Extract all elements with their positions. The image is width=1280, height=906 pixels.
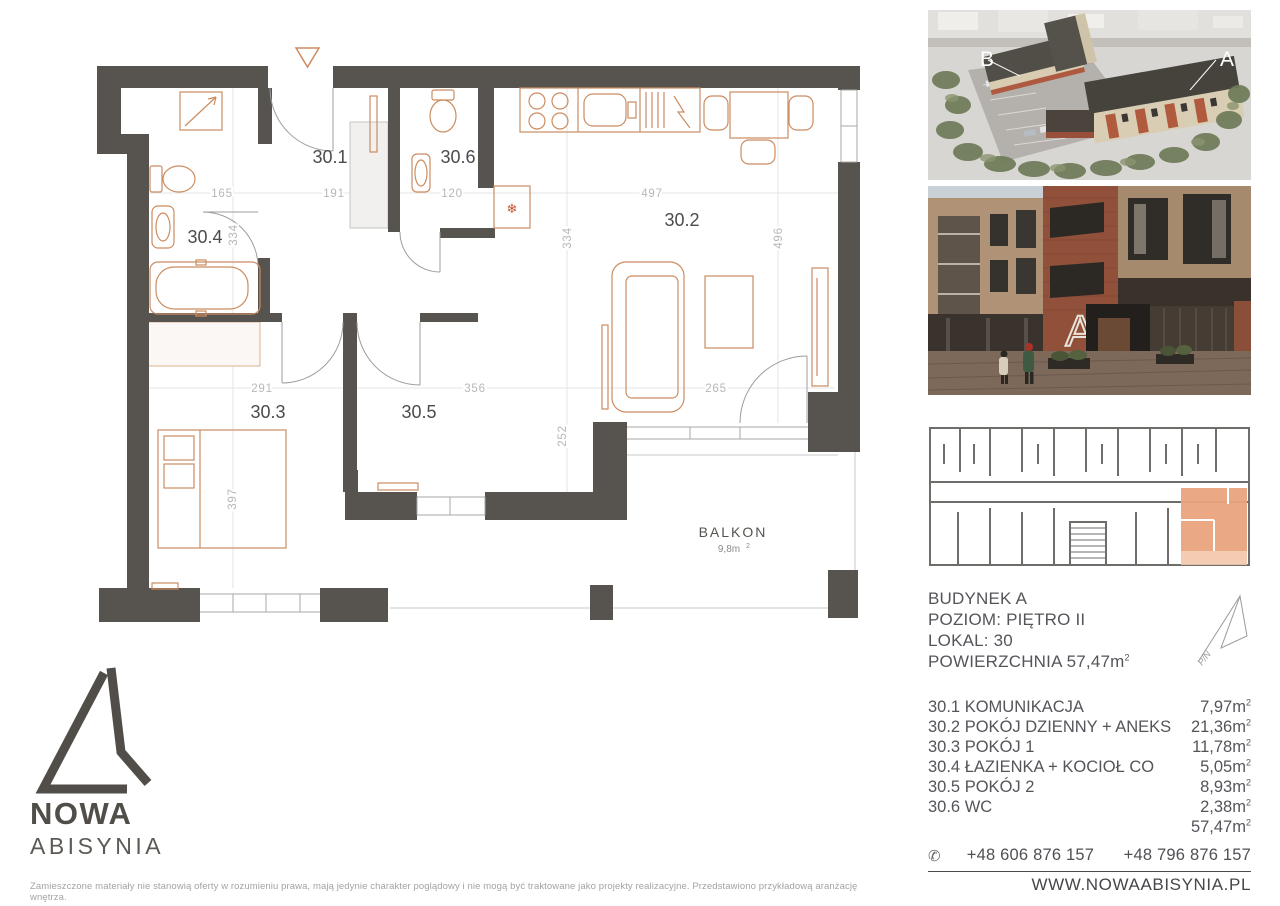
snowflake-icon: ❄ xyxy=(507,201,518,216)
dim-label: 497 xyxy=(641,188,663,200)
street-render-photo: A xyxy=(928,186,1251,395)
table-row: 30.4 ŁAZIENKA + KOCIOŁ CO 5,05m2 xyxy=(928,757,1251,777)
table-row: 30.2 POKÓJ DZIENNY + ANEKS 21,36m2 xyxy=(928,717,1251,737)
room-area-table: 30.1 KOMUNIKACJA 7,97m2 30.2 POKÓJ DZIEN… xyxy=(928,697,1251,837)
compass-label: P/N xyxy=(1196,649,1213,667)
wc-basin xyxy=(412,154,430,192)
room-label-30-5: 30.5 xyxy=(401,402,436,422)
dim-label: 191 xyxy=(323,188,345,200)
wc-toilet xyxy=(430,90,456,132)
dim-label: 291 xyxy=(251,383,273,395)
area-line: POWIERZCHNIA 57,47m2 xyxy=(928,651,1178,672)
overview-stairs xyxy=(1070,528,1106,558)
phone-number-1[interactable]: +48 606 876 157 xyxy=(967,846,1094,865)
dim-label: 334 xyxy=(228,224,240,246)
dim-label: 265 xyxy=(705,383,727,395)
building-line: BUDYNEK A xyxy=(928,588,1178,609)
building-a-label: A xyxy=(1220,48,1234,71)
dim-label: 334 xyxy=(562,227,574,249)
level-line: POZIOM: PIĘTRO II xyxy=(928,609,1178,630)
dim-label: 496 xyxy=(773,227,785,249)
sofa xyxy=(612,262,684,412)
bed xyxy=(158,430,286,548)
hall-closet xyxy=(350,122,388,228)
coffee-table xyxy=(705,276,753,348)
left-building xyxy=(928,198,1043,356)
dim-label: 252 xyxy=(557,425,569,447)
tv-cabinet xyxy=(812,268,828,386)
north-compass: P/N xyxy=(1194,590,1258,670)
phone-number-2[interactable]: +48 796 876 157 xyxy=(1124,846,1251,865)
building-b-label: B xyxy=(980,48,994,71)
pavement xyxy=(928,351,1251,395)
radiator xyxy=(378,483,418,490)
contact-block: ✆ +48 606 876 157 +48 796 876 157 WWW.NO… xyxy=(928,846,1251,895)
balcony-label: BALKON xyxy=(699,524,768,540)
dim-label: 356 xyxy=(464,383,486,395)
table-row: 30.1 KOMUNIKACJA 7,97m2 xyxy=(928,697,1251,717)
dining-table xyxy=(704,92,813,164)
legal-disclaimer: Zamieszczone materiały nie stanowią ofer… xyxy=(30,881,890,903)
shower xyxy=(180,92,222,130)
room-label-30-4: 30.4 xyxy=(187,227,222,247)
balcony-area: 9,8m xyxy=(718,544,740,555)
unit-info: BUDYNEK A POZIOM: PIĘTRO II LOKAL: 30 PO… xyxy=(928,588,1178,672)
unit-floorplan: ❄ 165 191 120 497 291 356 265 334 334 49… xyxy=(0,0,905,680)
dim-label: 397 xyxy=(227,488,239,510)
highlighted-unit xyxy=(1181,488,1247,565)
dim-label: 120 xyxy=(441,188,463,200)
toilet xyxy=(150,166,195,192)
balcony-area-sup: 2 xyxy=(746,543,750,550)
room-label-30-6: 30.6 xyxy=(440,147,475,167)
aerial-render-photo: B A xyxy=(928,10,1251,180)
phone-icon: ✆ xyxy=(928,847,941,865)
dim-label: 165 xyxy=(211,188,233,200)
room-label-30-2: 30.2 xyxy=(664,210,699,230)
table-row: 30.5 POKÓJ 2 8,93m2 xyxy=(928,777,1251,797)
unit-line: LOKAL: 30 xyxy=(928,630,1178,651)
dimension-labels: 165 191 120 497 291 356 265 334 334 496 … xyxy=(211,188,785,510)
table-total: 57,47m2 xyxy=(928,817,1251,837)
floor-overview-plan xyxy=(928,424,1251,570)
wardrobe xyxy=(148,322,260,366)
bathtub xyxy=(150,260,260,316)
website-link[interactable]: WWW.NOWAABISYNIA.PL xyxy=(928,875,1251,895)
brand-name-secondary: ABISYNIA xyxy=(30,833,164,860)
entrance-marker-icon xyxy=(296,48,319,67)
table-row: 30.3 POKÓJ 1 11,78m2 xyxy=(928,737,1251,757)
washbasin xyxy=(152,206,174,248)
brand-name: NOWA xyxy=(30,796,132,832)
radiator xyxy=(602,325,608,409)
contact-divider xyxy=(928,871,1251,872)
table-row: 30.6 WC 2,38m2 xyxy=(928,797,1251,817)
kitchen-counter xyxy=(520,88,700,132)
room-label-30-1: 30.1 xyxy=(312,147,347,167)
room-label-30-3: 30.3 xyxy=(250,402,285,422)
door-swings xyxy=(203,88,807,423)
apartment-card-page: ❄ 165 191 120 497 291 356 265 334 334 49… xyxy=(0,0,1280,906)
outbuilding xyxy=(1046,110,1094,138)
nowa-abisynia-logo-icon xyxy=(32,662,162,794)
